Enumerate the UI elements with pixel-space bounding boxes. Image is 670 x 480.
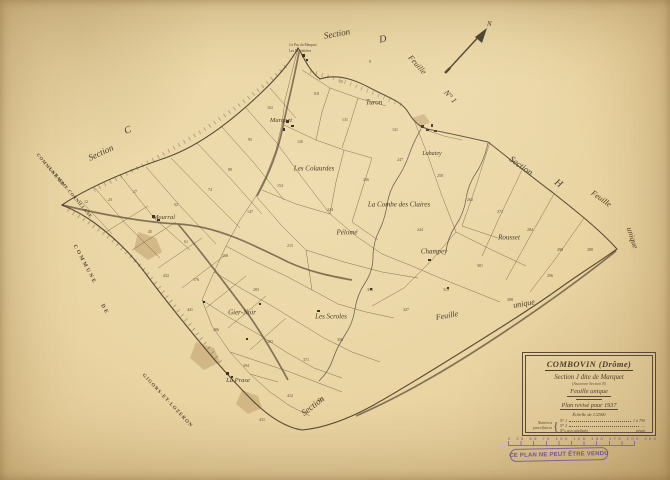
table-row: N°s non attribués néant (560, 429, 645, 433)
scale-bar-line (508, 441, 635, 446)
parcel-numbers-table: Numéros parcellaires { N° 1 1 à 790 N° 2… (533, 419, 645, 434)
commune-title: COMBOVIN (Drôme) (545, 359, 634, 371)
row-value: néant (636, 429, 645, 433)
cartouche: COMBOVIN (Drôme) Section J dite de Marqu… (522, 352, 656, 436)
dotted-leader (569, 421, 631, 422)
buildings (152, 54, 449, 378)
streams (319, 129, 488, 381)
revision-note: Plan revisé pour 1937 (560, 402, 619, 410)
dotted-leader (590, 432, 634, 433)
table-left-line2: parcellaires (533, 426, 552, 431)
north-arrow (445, 28, 487, 73)
cartouche-inner-frame: COMBOVIN (Drôme) Section J dite de Marqu… (525, 355, 653, 433)
table-left-labels: Numéros parcellaires (533, 421, 552, 431)
scale-note: Échelle de 1/2500 (572, 412, 605, 417)
scale-bar: 0 25 50 75 100 125 150 175 200 250 (508, 436, 635, 446)
sale-prohibition-stamp: CE PLAN NE PEUT ÊTRE VENDU (510, 447, 608, 462)
sheet-title: Feuille unique (567, 388, 611, 397)
dotted-leader (569, 426, 639, 427)
table-brace: { (553, 419, 559, 434)
row-label: N°s non attribués (560, 429, 588, 433)
table-rows: N° 1 1 à 790 N° 2 — N°s non attribués né… (560, 419, 645, 434)
north-label: N (487, 20, 492, 28)
ancienne-section-note: (Ancienne Section N) (572, 381, 606, 386)
section-title: Section J dite de Marquet (554, 374, 624, 381)
cartouche-divider (576, 399, 602, 400)
table-row: N° 1 1 à 790 (560, 419, 645, 423)
cadastral-map-sheet: SectionDFeuilleN° 1SectionCCOMMUNE DELA … (0, 0, 670, 480)
